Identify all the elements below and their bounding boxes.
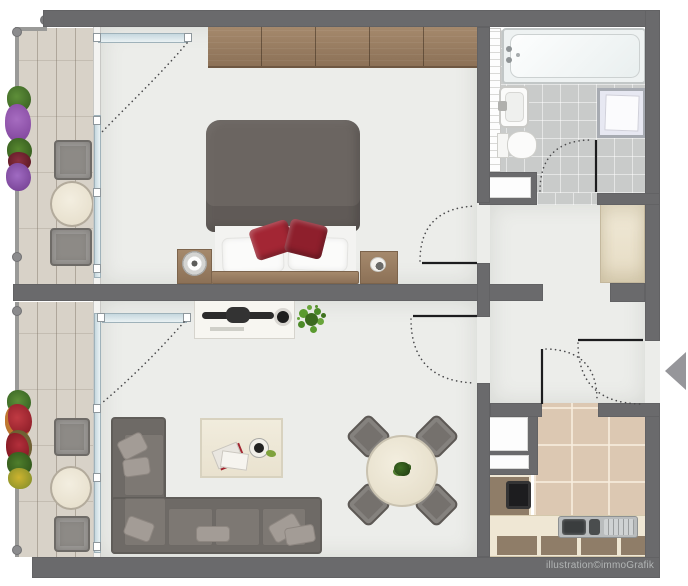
toilet-bowl <box>507 131 537 159</box>
kitchen-top-wall-right <box>598 403 660 417</box>
magazine <box>220 450 249 471</box>
speaker <box>274 308 292 326</box>
window-handle <box>93 542 101 551</box>
living-top-window <box>102 313 187 323</box>
window-handle <box>93 188 101 197</box>
flower-box-purple <box>5 104 31 142</box>
kitchen-top-wall-left <box>490 403 542 417</box>
middle-wall <box>13 284 543 301</box>
remote <box>210 327 244 331</box>
living-door-threshold <box>477 317 490 383</box>
bathroom-door-threshold <box>537 193 597 205</box>
spine-wall-bottom <box>477 383 490 557</box>
bistro-table <box>50 466 92 510</box>
bathtub-faucet <box>506 46 512 52</box>
balcony-chair <box>54 418 90 456</box>
wall-niche <box>486 177 531 198</box>
wardrobe <box>208 27 477 68</box>
hall-closet <box>600 203 645 283</box>
spine-wall-mid <box>477 263 490 317</box>
sink-basin <box>562 519 586 535</box>
balcony-chair <box>50 228 92 266</box>
bed-foot-rail <box>211 271 359 284</box>
bed-duvet <box>206 120 360 232</box>
bathroom-bottom-wall-right <box>597 193 660 205</box>
railing-post <box>12 252 22 262</box>
window-handle <box>184 33 192 42</box>
window-handle <box>93 33 101 42</box>
washbasin-faucet <box>498 101 507 111</box>
window-handle <box>93 473 101 482</box>
balcony-chair <box>54 140 92 180</box>
entrance-arrow <box>665 352 686 390</box>
railing-post <box>12 545 22 555</box>
shower-tray <box>604 94 639 131</box>
table-centerpiece <box>394 462 410 476</box>
flower-box-yellow <box>8 468 32 489</box>
window-handle <box>183 313 191 322</box>
spine-wall-top <box>477 27 490 203</box>
sink-basin <box>589 519 600 535</box>
right-wall-lower <box>645 404 660 578</box>
window-handle <box>93 264 101 273</box>
bistro-table <box>50 181 94 227</box>
nightstand-decor <box>370 257 386 272</box>
table-lamp <box>182 251 207 276</box>
throw-pillow <box>196 526 230 542</box>
living-balcony-window <box>94 313 101 553</box>
utility-niche <box>489 417 528 451</box>
right-wall-upper <box>645 10 660 341</box>
bedroom-top-window <box>98 33 188 43</box>
railing-post <box>12 306 22 316</box>
balcony-chair <box>54 516 90 552</box>
bedroom-door-threshold <box>477 203 490 263</box>
sink-drainer <box>604 519 634 535</box>
flower-box-purple <box>6 163 31 191</box>
cooktop <box>506 481 531 509</box>
top-wall <box>43 10 660 27</box>
houseplant <box>305 313 318 326</box>
kitchen-cabinet-front <box>620 535 646 556</box>
cup-coffee <box>254 443 264 453</box>
entrance-threshold <box>645 341 660 404</box>
kitchen-cabinet-front <box>580 535 618 556</box>
kitchen-cabinet-front <box>540 535 578 556</box>
utility-niche <box>489 455 529 469</box>
window-handle <box>93 116 101 125</box>
window-handle <box>93 404 101 413</box>
watermark-credit: illustration©immoGrafik <box>546 560 654 571</box>
railing-post <box>12 27 22 37</box>
floor-plan: illustration©immoGrafik <box>0 0 688 586</box>
kitchen-cabinet-front <box>496 535 538 556</box>
bathtub-basin <box>510 34 640 78</box>
throw-pillow <box>122 456 151 478</box>
washbasin-bowl <box>505 92 524 122</box>
closet-stub-wall <box>610 283 645 302</box>
tv-stand <box>226 307 250 323</box>
window-handle <box>97 313 105 322</box>
